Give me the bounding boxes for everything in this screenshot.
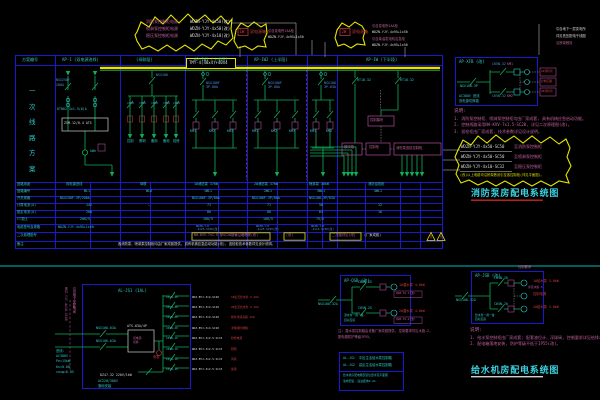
pump2-notes-head: 说明:	[470, 328, 482, 334]
incomer-rating-label: 200A	[56, 84, 64, 88]
feeder-brk-1: C65N	[127, 102, 134, 105]
table-cell: WL1	[84, 190, 90, 194]
pump1-load-1: 1#潜水泵 4.0kW	[399, 284, 425, 288]
pump1-tag-2: QSB-JS-2(改)	[396, 318, 416, 321]
fire-cloud-spec-3: WDZN-YJY-4x10-SC32	[461, 165, 504, 170]
feeder-coils	[128, 116, 179, 122]
water-meter-label: 电表	[153, 356, 160, 360]
table-cell: 142	[86, 204, 92, 208]
row-label: 整定电流(A)	[17, 211, 36, 215]
table-cell: 2WL1	[264, 190, 272, 194]
water-in-brk-2: NSX100-63A	[96, 340, 116, 344]
flow-arrows	[66, 71, 424, 177]
header-scheme: 方案编号	[22, 58, 38, 63]
cable-spec-cell: WDZN-YJY -4x25-SC50(改)	[196, 225, 219, 232]
table-cell: 75/5	[316, 218, 324, 222]
water-diagram-title: 给水机房配电系统图	[471, 365, 559, 376]
fuse-label-1: RT18-32	[357, 79, 371, 83]
table-cell: 80	[207, 211, 211, 215]
table-cell: 喷淋泵 30kW	[309, 183, 329, 187]
table-cell: 200/5	[80, 218, 90, 222]
water-branch-breakers: C65N-20 C65N-20 C65N-20 C65N-20 C65N-16 …	[166, 292, 178, 375]
feeder-use-1: 控制	[127, 140, 134, 144]
fuse-label-2: RT18-32	[400, 79, 414, 83]
module-box3-label: 控制柜	[369, 146, 379, 150]
cable-spec-cell: WDZN-YJY -4x16-SC40(改)	[311, 225, 334, 232]
incomer-out-label: kWh	[90, 150, 96, 154]
cloud1-spec-3: WDZN-YJY-4x10(改)	[190, 34, 230, 39]
feeder-use-3: 备用	[151, 140, 158, 144]
pump1-circuit	[318, 283, 391, 316]
fire-title-underline	[471, 200, 543, 201]
pump2-notes: 1. 给水泵控制柜由厂家成套; 配套液位计、浮球阀, 控制要求详见给排水图纸。 …	[470, 335, 600, 348]
row-label: 二次原理图号	[17, 234, 37, 238]
water-branch-loads: 1#生活给水泵 2.2kW 2#生活给水泵 2.2kW 紫外线消毒器 1kW 浮…	[231, 292, 258, 375]
rev-text-1: 双电源箱	[250, 30, 266, 35]
motor3-km1: KM1	[310, 130, 316, 134]
source-label-b2: 引自柴油发电机应急柜	[372, 38, 405, 42]
pump1-br2: C65N-25	[358, 307, 372, 311]
pump1-foot: 潜水泵一用一备 自动互投	[344, 313, 364, 322]
header-col-1: AP-1 (双电源进线)	[62, 58, 99, 63]
table-cell: 母联	[140, 183, 147, 187]
fire-tag-1: 1#消防泵	[541, 70, 553, 73]
table-cell: 16	[378, 211, 382, 215]
water-param-block: 进线: AC380V Pe=15kW Kx=0.80 cosφ=0.85	[56, 349, 74, 375]
motor3-km2: KM2	[326, 130, 332, 134]
table-cell: 100/5	[203, 218, 213, 222]
water-ats-label: ATS-63A/4P	[127, 325, 147, 329]
pump1-br1: C65N-25	[358, 281, 372, 285]
row-label: 开关规格	[17, 197, 30, 201]
fire-notes: 1. 消防泵控制柜、喷淋泵控制柜均由厂家成套, 具有机械应急启动功能。 2. 控…	[454, 116, 586, 136]
legend-row-2: AL-JS2 高区生活给水泵控制箱	[343, 364, 392, 368]
fire-cloud-spec-2: WDZN-YJY-4x50-SC50	[461, 155, 504, 160]
water-in-brk-1: NSX100-63A	[96, 327, 116, 331]
table-cell: 4WL1	[374, 190, 382, 194]
feeder-main-breaker: NSX100	[156, 74, 168, 78]
motor1-km3: KM3	[227, 130, 233, 134]
table-cell: 63	[319, 211, 323, 215]
rev-text-2: 双电源箱	[352, 30, 368, 35]
pump2-circuit	[455, 279, 521, 312]
cad-canvas: 消防泵控制柜电源 WDZN-YJY-4x50(改) 喷淋泵控制柜电源 WDZN-…	[0, 0, 600, 400]
pump1-in-brk: NSX100-32A	[318, 303, 338, 307]
motor2-breaker: NSX100F 3P-80A	[268, 82, 282, 90]
water-box-label: AL-JS1 (1AL)	[118, 289, 147, 294]
table-cell: NSX100F-3P/80A	[252, 197, 280, 201]
table-cell: 12	[378, 204, 382, 208]
remark-highlight-2: (改)	[286, 234, 293, 238]
cable-spec-cell: WDZN-YJY -4x25-SC50(改)	[256, 225, 279, 232]
table-cell: 71	[207, 204, 211, 208]
cloud1-label-2: 喷淋泵控制柜电源	[146, 27, 178, 32]
table-cell: WL0	[146, 190, 152, 194]
fire-box-foot: AC380V 进线 双电源切换箱	[459, 94, 480, 104]
fire-pump-circuit	[457, 68, 525, 95]
table-cell: NSX100F-3P/80A	[192, 197, 220, 201]
fire-cloud-label-2: 至喷淋泵控制柜	[514, 155, 542, 160]
inspection-cabinet-label: 消防泵巡检控制柜	[396, 147, 422, 151]
fire-tag-2: 控制回路	[541, 80, 552, 83]
cloud1-label-1: 消防泵控制柜电源	[146, 20, 178, 25]
source-label-b1: 引自变电所2AA柜	[372, 25, 398, 29]
fire-pump-devices	[514, 69, 530, 95]
table-cell: 3WL1	[317, 190, 325, 194]
source-spec-b1: WDZN-YJY-4x95+1x50	[372, 31, 408, 35]
incomer-ct	[66, 98, 97, 107]
table-cell: 1WL1	[204, 190, 212, 194]
fire-km2: KM2	[507, 95, 513, 99]
rev-tag-2: 2W	[342, 30, 347, 35]
cloud1-spec-1: WDZN-YJY-4x50(改)	[190, 20, 230, 25]
scheme-vertical-label: 一 次 线 路 方 案	[29, 84, 36, 177]
table-cell: 双电源进线	[66, 183, 82, 187]
motor1-km2: KM2	[209, 130, 215, 134]
table-cell: (厂家成套)	[364, 234, 381, 238]
busbar-label: TMY-4(40x4)+40x4	[189, 61, 228, 66]
pump2-top-note: 控制要求	[518, 266, 531, 270]
pump2-foot: 给水泵一用一备 自动互投	[475, 313, 495, 322]
motor2-km3: KM3	[289, 130, 295, 134]
row-label: CT变比	[17, 218, 28, 222]
pump2-in-brk: NSX100-32A	[456, 299, 476, 303]
table-cell: 消防巡检柜	[368, 183, 384, 187]
row-label: 备注	[17, 243, 24, 247]
cloud1-label-3: 稳压泵控制柜电源	[146, 34, 178, 39]
remark-highlight-1: NH-KVV-7x1.5 穿SC20钢管沿墙暗敷(改)	[194, 234, 258, 238]
table-cell: NSX250F-3P/200A	[60, 197, 90, 201]
fire-in-breaker: NSX100-3P	[460, 85, 478, 89]
fire-km1: KM1	[507, 63, 513, 67]
table-cell: 2#消防泵 37kW	[254, 183, 278, 187]
pump2-br2: C65N-20	[494, 303, 508, 307]
feeder-use-5: 检修	[173, 140, 180, 144]
corner-note-1: 引自地下一层变电所	[556, 28, 586, 32]
motor1-km1: KM1	[190, 130, 196, 134]
contactor-coils	[193, 122, 333, 129]
fire-cloud-label-3: 至稳压泵控制柜	[514, 165, 542, 170]
header-col-5: AP-1W (下半段)	[366, 58, 397, 63]
table-cell: —	[148, 204, 150, 208]
fire-br2: C65N-32	[492, 95, 506, 99]
feeder-brk-2: C65N	[139, 102, 146, 105]
legend-note-1: 给水机房配电箱安装位置详见平面图	[343, 374, 388, 377]
water-ats-sub: 双电源 切换	[133, 336, 141, 344]
pump2-load-1: 1#给水泵 3.0kW	[533, 280, 559, 284]
pump1-note: 注: 潜水泵控制箱由设备厂家成套提供, 控制要求详见水施-2, 配电箱防护等级I…	[338, 329, 431, 340]
pump2-devices	[508, 280, 527, 312]
legend-note-2: 落地安装, 底边距地0.2m	[343, 380, 375, 383]
header-col-4: AP-1W2 (上半段)	[254, 58, 288, 63]
meter-box	[98, 144, 105, 151]
motor-ct-circles	[202, 73, 328, 76]
remark-note: 各消防泵、喷淋泵控制柜均由厂家成套提供, 具有机械应急启动功能(改), 巡检柜技…	[118, 243, 275, 247]
feeder-brk-4: C65N	[163, 102, 170, 105]
fire-tag-3: 2#消防泵	[541, 90, 553, 93]
table-cell: NSX100-3P/63A	[309, 197, 335, 201]
fire-cloud-extra: (改)以上电缆均沿桥架敷设引至各控制柜(详见平面图)。	[460, 174, 544, 178]
pump1-tag-1: QSB-JS-1(改)	[396, 292, 416, 295]
incomer-ats-label: ZSM-12/0.4 ATS	[64, 122, 92, 126]
feeder-use-2: 照明	[139, 140, 146, 144]
row-label: 电缆型号及规格	[17, 226, 40, 230]
source-spec-a: WDZN-YJY-4x95+1x50	[268, 36, 304, 40]
table-cell: 58	[319, 204, 323, 208]
motor3-breaker: NSX100 3P-63A	[324, 82, 336, 90]
corner-note-2: 详见低压配电干线图	[556, 35, 586, 39]
corner-note-3: 沿桥架敷设	[556, 42, 572, 46]
pump2-br1: C65N-20	[494, 277, 508, 281]
table-cell: 200	[86, 211, 92, 215]
pump2-load-2: 控制电源	[533, 293, 546, 297]
water-branch-specs: WDZ-BYJ-3x4-SC20 WDZ-BYJ-3x4-SC20 WDZ-BY…	[192, 292, 222, 375]
feeder-brk-3: C65N	[151, 102, 158, 105]
water-title-underline	[471, 376, 543, 377]
feeder-brk-5: C65N	[173, 102, 180, 105]
rev-tag-1: 1W	[240, 30, 245, 35]
module-box2-label: 模块箱	[344, 146, 354, 150]
row-label: 回路编号	[17, 190, 30, 194]
feeder-use-4: 备用	[163, 140, 170, 144]
pump2-tag-1: 详见水施-5	[528, 286, 543, 289]
table-cell: 80	[267, 211, 271, 215]
source-label-a: 引自变电所1AA柜	[268, 30, 294, 34]
pump2-load-3: 2#给水泵 3.0kW	[533, 306, 559, 310]
fire-br1: C65N-32	[492, 63, 506, 67]
table-cell: 1#消防泵 37kW	[194, 183, 218, 187]
water-sub-branch: DZ47-32 220V/1kW	[100, 374, 132, 378]
fire-cloud-label-1: 至消防泵控制柜	[514, 145, 542, 150]
fire-cloud-spec-1: WDZN-YJY-4x50-SC50	[461, 145, 504, 150]
table-cell: 100/5	[263, 218, 273, 222]
motor2-km1: KM1	[252, 130, 258, 134]
water-box-foot: AC220/380V 落地安装	[98, 379, 118, 389]
module-box-label: 控制模块	[370, 119, 383, 123]
cloud1-spec-2: WDZN-YJY-4x50(改)	[190, 27, 230, 32]
fire-diagram-title: 消防泵房配电系统图	[471, 188, 559, 199]
motor1-breaker: NSX100F 3P-80A	[206, 82, 220, 90]
remark-highlight-3: 二次图详见(改)	[332, 234, 356, 238]
cable-spec-cell: WDZN-YJY-4x95+1x50	[58, 226, 94, 230]
table-cell: 71	[267, 204, 271, 208]
row-label: 回路用途	[17, 183, 30, 187]
row-label: 计算电流(A)	[17, 204, 36, 208]
source-spec-b2: WDZN-YJY-4x95+1x50	[372, 44, 408, 48]
legend-row-1: AL-JS1 中区生活给水泵控制箱	[343, 357, 392, 361]
fire-notes-head: 说明:	[454, 109, 466, 115]
fire-box-label: AP-XFB (改)	[459, 60, 485, 65]
header-col-2: (母联段)	[136, 58, 153, 63]
motor2-km2: KM2	[271, 130, 277, 134]
pump1-load-2: 2#潜水泵 4.0kW	[399, 310, 425, 314]
incomer-meter-label: DT862 3x1.5(6)A	[57, 108, 87, 112]
